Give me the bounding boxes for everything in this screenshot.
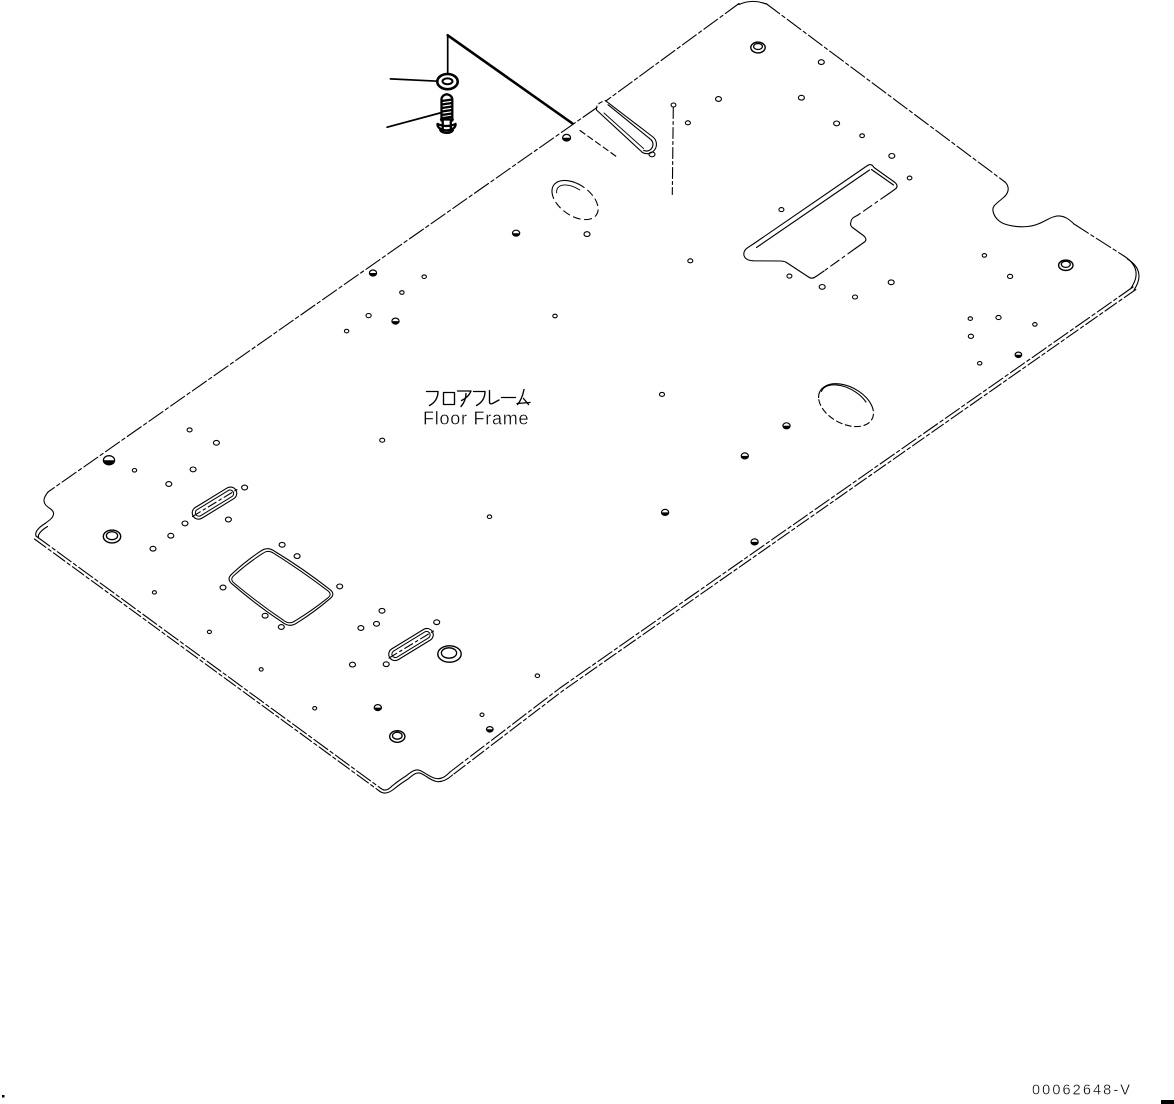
svg-text:00062648-V: 00062648-V: [1032, 1083, 1132, 1099]
svg-text:Floor Frame: Floor Frame: [423, 409, 529, 429]
